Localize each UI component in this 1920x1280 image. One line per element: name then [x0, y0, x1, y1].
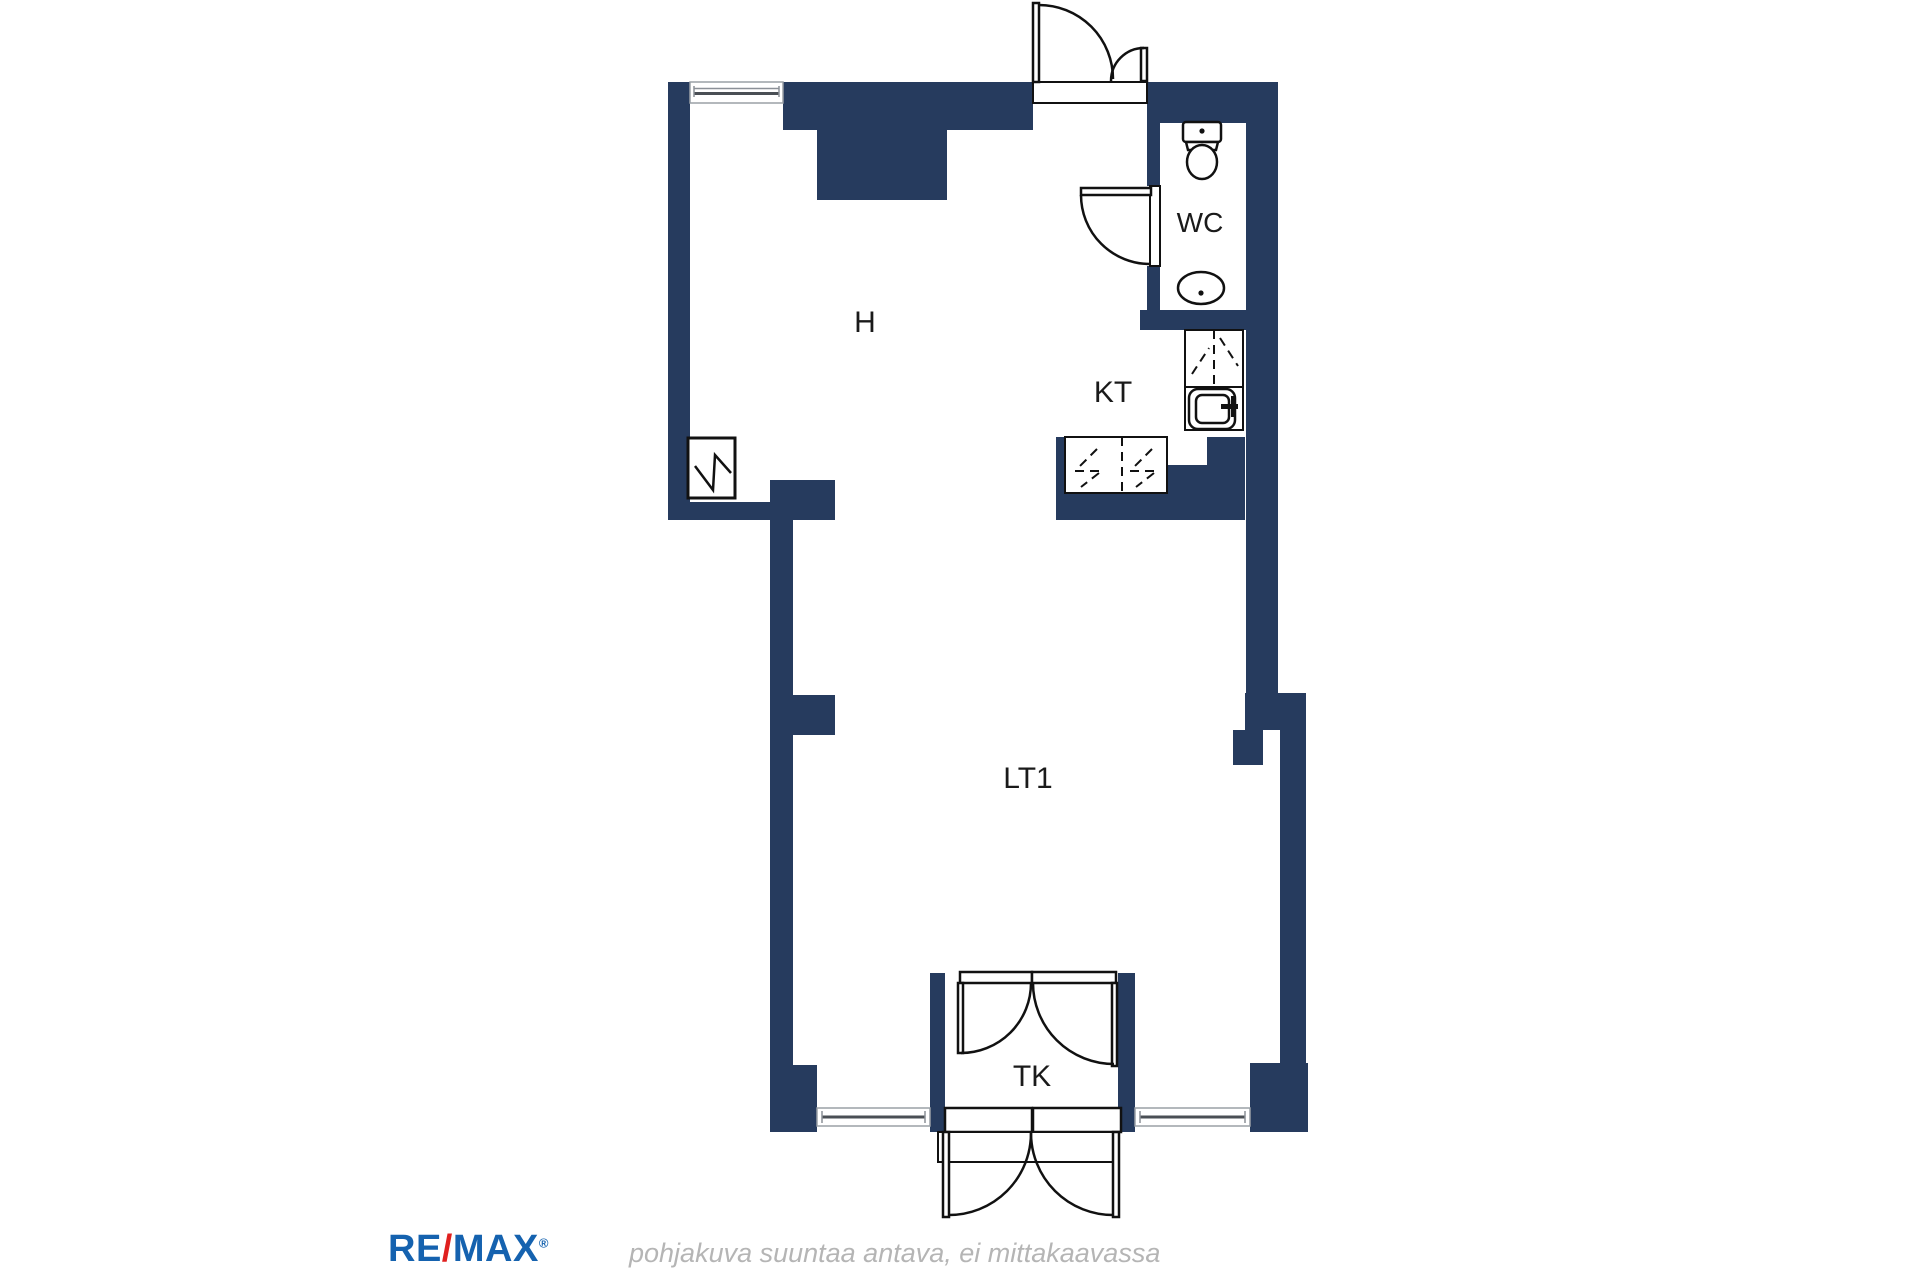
kitchen-sink-icon: [1189, 389, 1238, 429]
door-leaf: [1141, 48, 1147, 81]
wc-door: [1081, 186, 1160, 266]
wall-segment-chimney: [817, 130, 947, 200]
wall-segment: [1147, 103, 1160, 186]
door-swing-arc: [1081, 195, 1150, 264]
toilet-icon: [1183, 122, 1221, 179]
flue-icon: [688, 438, 735, 498]
door-leaf: [958, 983, 963, 1053]
floor-patch: [1167, 430, 1207, 465]
registered-trademark-symbol: ®: [539, 1235, 549, 1250]
door-swing-arc: [1039, 5, 1113, 79]
door-leaf: [1033, 3, 1039, 82]
remax-logo-slash: /: [442, 1228, 453, 1270]
wall-segment: [668, 502, 772, 520]
door-leaf: [1113, 1132, 1119, 1217]
room-label-main-room: LT1: [1003, 762, 1052, 795]
wall-segment: [1280, 730, 1306, 1063]
door-swing-arc: [961, 983, 1031, 1053]
wall-segment-pier: [793, 695, 835, 735]
door-leaf: [943, 1132, 949, 1217]
room-label-vestibule: TK: [1013, 1060, 1051, 1093]
wall-segment: [770, 1065, 817, 1132]
window-bottom-left: [817, 1108, 930, 1126]
window-top: [690, 82, 783, 103]
room-label-wc: WC: [1177, 207, 1224, 238]
wall-segment-pier: [1233, 730, 1263, 765]
door-leaf: [1081, 188, 1151, 195]
room-label-hall: H: [854, 306, 876, 339]
door-swing-arc: [1111, 48, 1144, 81]
wall-segment: [1246, 82, 1278, 693]
remax-logo-re: RE: [388, 1228, 442, 1270]
tk-inner-double-door: [958, 972, 1117, 1066]
floor-plan: H WC KT LT1 TK: [0, 0, 1920, 1280]
wall-segment: [1140, 310, 1246, 330]
wall-segment: [783, 82, 1033, 103]
wall-segment: [770, 480, 835, 520]
wall-segment: [930, 973, 945, 1132]
washbasin-icon: [1178, 272, 1224, 304]
remax-logo: RE/MAX®: [388, 1228, 549, 1271]
wall-segment-chimney: [783, 103, 1033, 130]
wall-segment: [1250, 1063, 1308, 1132]
window-bottom-right: [1135, 1108, 1250, 1126]
remax-logo-max: MAX: [453, 1228, 539, 1270]
wall-segment: [770, 480, 793, 1065]
door-swing-arc: [1033, 983, 1114, 1064]
tk-outer-double-door: [938, 1108, 1121, 1217]
entry-door: [1033, 3, 1147, 103]
door-leaf: [1112, 983, 1117, 1066]
wall-segment: [1245, 693, 1306, 730]
room-label-kitchen: KT: [1094, 376, 1132, 409]
disclaimer-text: pohjakuva suuntaa antava, ei mittakaavas…: [629, 1238, 1031, 1269]
